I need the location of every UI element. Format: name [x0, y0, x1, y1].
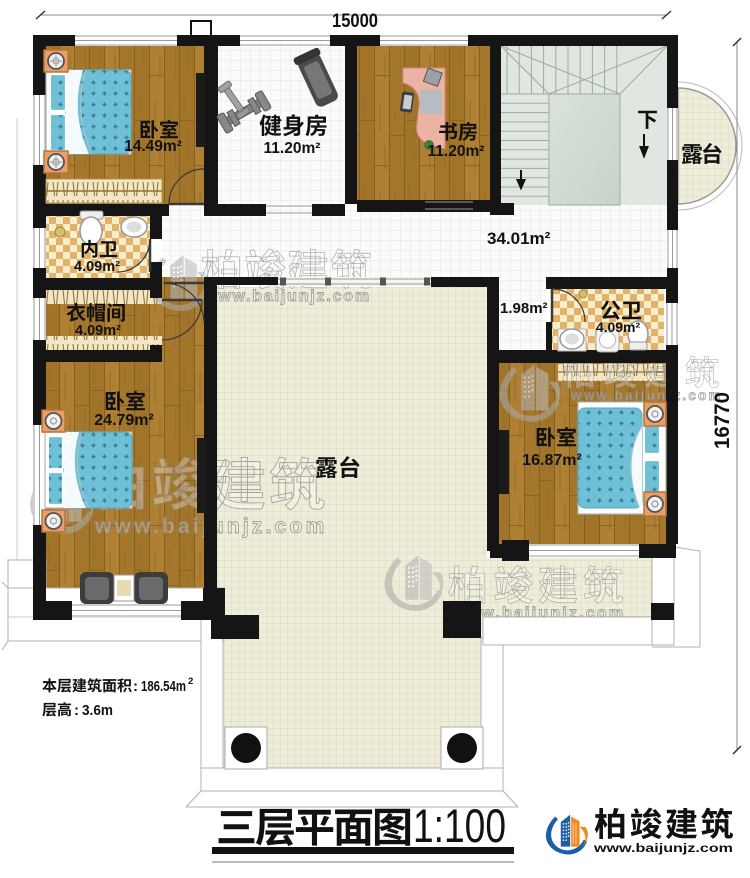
svg-text:24.79m²: 24.79m²	[94, 412, 154, 429]
svg-text:15000: 15000	[332, 11, 378, 32]
svg-text:34.01m²: 34.01m²	[487, 229, 551, 248]
svg-text:3.6m: 3.6m	[82, 702, 113, 719]
svg-text:14.49m²: 14.49m²	[124, 138, 182, 155]
svg-text:11.20m²: 11.20m²	[428, 143, 485, 160]
svg-text:16770: 16770	[711, 392, 734, 449]
svg-text:4.09m²: 4.09m²	[596, 319, 641, 335]
svg-text:2: 2	[188, 676, 193, 687]
svg-text:1.98m²: 1.98m²	[500, 300, 548, 317]
svg-text:4.09m²: 4.09m²	[75, 323, 121, 339]
svg-text::: :	[74, 702, 79, 719]
svg-text:11.20m²: 11.20m²	[264, 140, 321, 157]
svg-text:www.baijunjz.com: www.baijunjz.com	[203, 288, 371, 305]
svg-text:1:100: 1:100	[413, 799, 506, 852]
svg-text:16.87m²: 16.87m²	[522, 452, 582, 469]
svg-text:4.09m²: 4.09m²	[74, 259, 120, 275]
svg-text:www.baijunjz.com: www.baijunjz.com	[593, 841, 733, 855]
svg-text:www.baijunjz.com: www.baijunjz.com	[570, 388, 723, 403]
svg-text::: :	[133, 678, 138, 695]
svg-text:186.54m: 186.54m	[141, 678, 186, 695]
